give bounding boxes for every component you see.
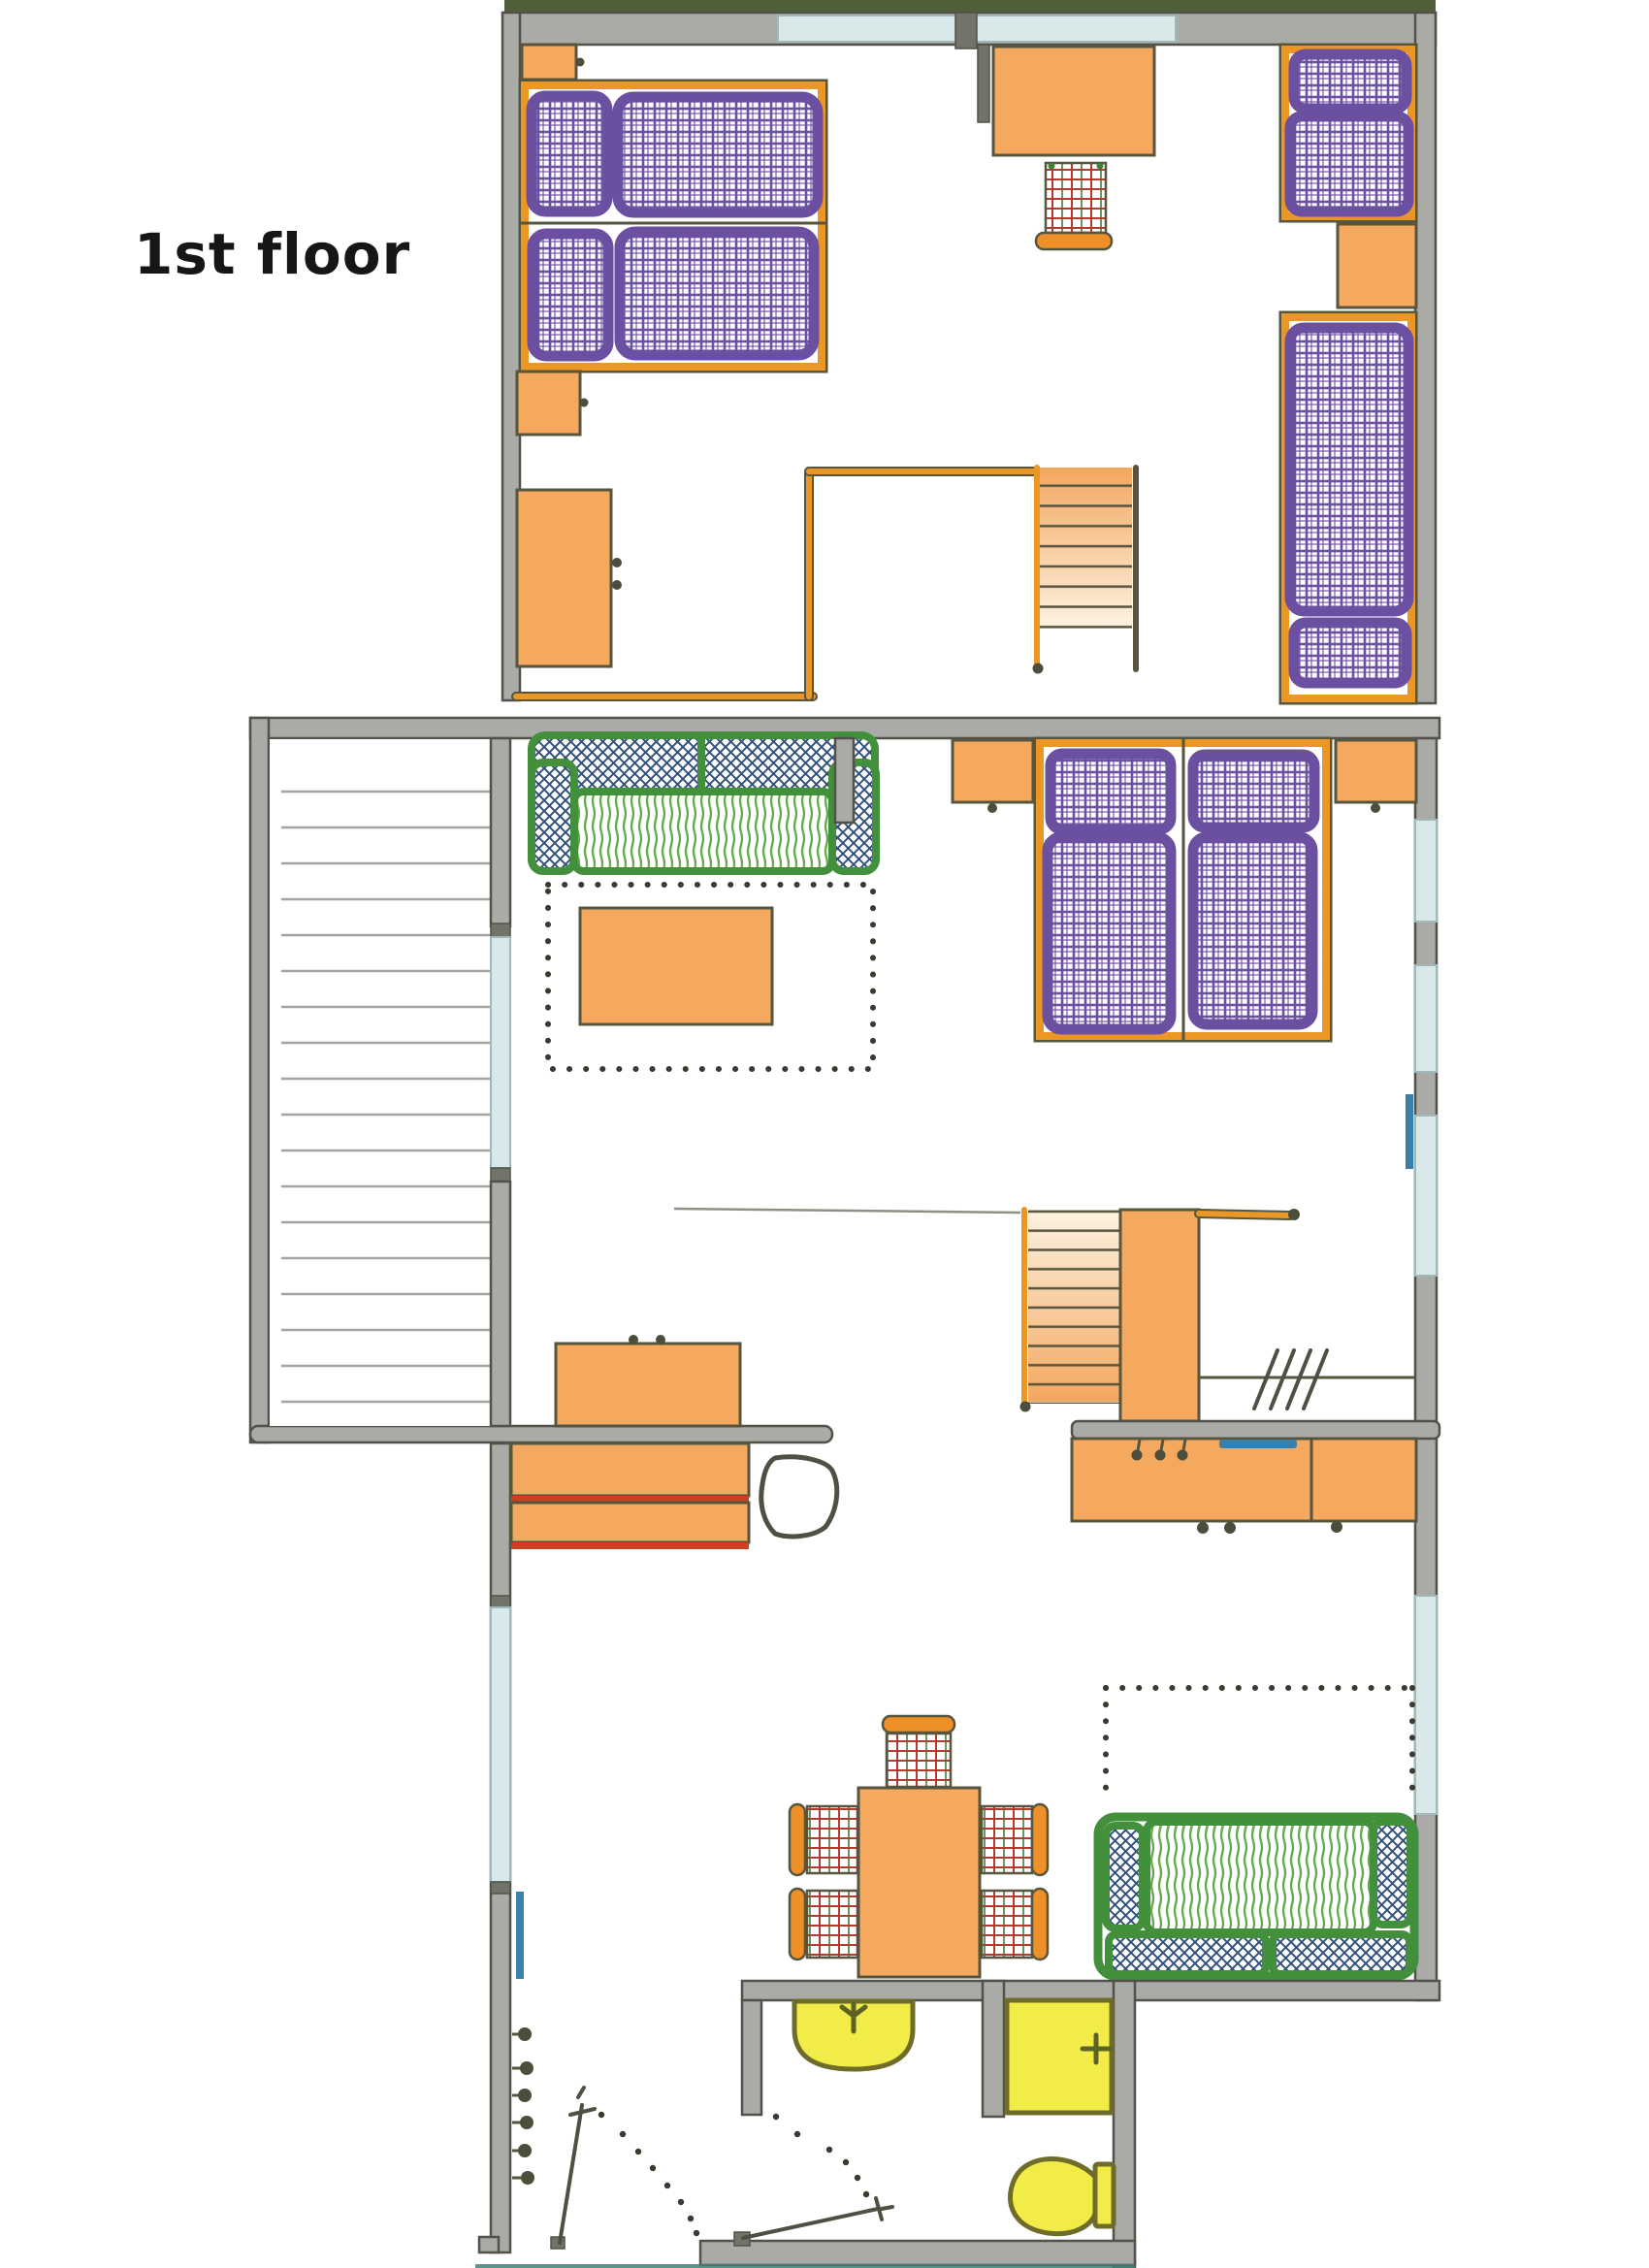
office-cabinet bbox=[556, 1335, 740, 1426]
cabinet-top-left bbox=[522, 45, 585, 80]
window-mullion bbox=[955, 13, 977, 49]
mattress-bed-right-2 bbox=[1290, 328, 1408, 611]
staircase-main bbox=[1020, 1210, 1120, 1412]
daybed-arm-left bbox=[1106, 1826, 1143, 1928]
wall-stub bbox=[835, 738, 854, 823]
daybed-arm-right bbox=[1374, 1822, 1410, 1925]
bathroom-door bbox=[734, 2114, 892, 2246]
coat-hooks bbox=[512, 2027, 534, 2185]
kitchen-sink bbox=[1219, 1440, 1297, 1448]
dining-chair-left-1 bbox=[790, 1804, 857, 1875]
nightstand-attic bbox=[1338, 224, 1416, 308]
bed-right-2 bbox=[1280, 312, 1416, 703]
shower-jamb bbox=[983, 1981, 1004, 2117]
sofa-living bbox=[532, 735, 876, 871]
bathroom-door-arc bbox=[773, 2114, 869, 2197]
dining-table bbox=[858, 1788, 980, 1977]
dining-chair-right-1 bbox=[982, 1804, 1048, 1875]
bathroom-left-stub bbox=[742, 2000, 761, 2115]
double-bed bbox=[1035, 738, 1331, 1041]
shower bbox=[1007, 2000, 1112, 2113]
entry-door-arc bbox=[598, 2112, 699, 2236]
main-floor-plan bbox=[250, 718, 1439, 2268]
stair-opening-line bbox=[674, 1209, 1020, 1213]
sofa-daybed bbox=[1098, 1817, 1414, 1976]
bottom-wall-cap bbox=[479, 2237, 499, 2252]
mattress-double-right bbox=[1193, 837, 1312, 1024]
rug-daybed bbox=[1106, 1688, 1412, 1798]
sofa-arm-left bbox=[532, 762, 574, 871]
bed-group-left bbox=[520, 81, 826, 372]
dining-chair-right-2 bbox=[982, 1889, 1048, 1960]
terrace-glass-partition bbox=[491, 738, 510, 1426]
bottom-wall bbox=[700, 2241, 1135, 2265]
pillow-bed-left-2 bbox=[533, 234, 608, 356]
pillow-double-right bbox=[1193, 755, 1314, 827]
main-left-wall bbox=[250, 718, 269, 1442]
daybed-cushion-left bbox=[1109, 1934, 1266, 1974]
window-wall-right bbox=[1415, 738, 1437, 2000]
radiator-entry bbox=[516, 1892, 524, 1979]
mattress-bed-left-2 bbox=[620, 232, 814, 355]
attic-floor-plan bbox=[502, 0, 1436, 703]
pillow-bed-left-1 bbox=[532, 96, 607, 211]
nightstand-left bbox=[953, 740, 1033, 813]
floor-plan-page: 1st floor bbox=[0, 0, 1649, 2268]
desk bbox=[511, 1443, 749, 1549]
window-post bbox=[978, 45, 989, 122]
pillow-bed-right-2 bbox=[1294, 623, 1406, 683]
chair-attic bbox=[1036, 163, 1112, 250]
stair-railing bbox=[1199, 1209, 1300, 1220]
bathroom-right-wall bbox=[1114, 1981, 1135, 2268]
bottom-shadow bbox=[475, 2264, 1135, 2268]
left-wall-lower bbox=[491, 1443, 510, 2252]
office-wall bbox=[250, 1426, 832, 1442]
bathroom-top-wall bbox=[742, 1981, 1439, 2000]
kitchen-counter bbox=[1072, 1439, 1416, 1534]
wardrobe-left bbox=[517, 490, 622, 666]
dining-chair-top bbox=[883, 1716, 954, 1787]
kitchen-wall bbox=[1072, 1421, 1439, 1439]
toilet bbox=[1010, 2159, 1114, 2234]
desk-chair bbox=[761, 1457, 837, 1537]
staircase-attic bbox=[1033, 468, 1137, 674]
dining-chair-left-2 bbox=[790, 1889, 857, 1960]
mattress-double-left bbox=[1048, 837, 1171, 1029]
bed-right-1 bbox=[1280, 45, 1416, 221]
floor-plan-drawing bbox=[0, 0, 1649, 2268]
daybed-seat bbox=[1147, 1822, 1374, 1932]
wardrobe-hall bbox=[1120, 1210, 1199, 1421]
daybed-cushion-right bbox=[1273, 1934, 1409, 1974]
attic-right-wall bbox=[1415, 13, 1436, 703]
radiator-window bbox=[1406, 1094, 1413, 1169]
terrace bbox=[270, 739, 491, 1426]
bathroom-sink bbox=[794, 2001, 913, 2069]
roof-edge bbox=[504, 0, 1436, 13]
pillow-double-left bbox=[1051, 754, 1171, 829]
nightstand-right bbox=[1336, 740, 1416, 813]
mattress-bed-left-1 bbox=[618, 97, 818, 212]
coffee-table bbox=[580, 908, 772, 1024]
entry-door bbox=[551, 2088, 699, 2249]
cabinet-left bbox=[517, 372, 589, 435]
pillow-bed-right-1 bbox=[1294, 54, 1406, 109]
table-attic bbox=[993, 47, 1154, 155]
radiator-line bbox=[1199, 1350, 1415, 1409]
sofa-seat bbox=[574, 792, 832, 871]
mattress-bed-right-1 bbox=[1290, 116, 1408, 211]
